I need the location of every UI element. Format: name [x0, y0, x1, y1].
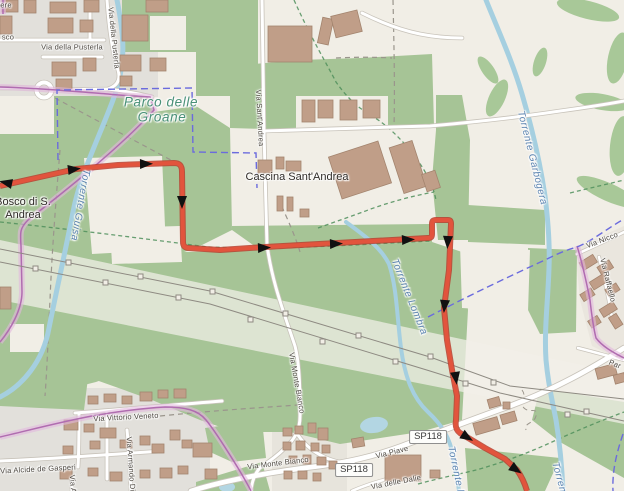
map-canvas[interactable] — [0, 0, 624, 491]
map-viewport[interactable]: Parco delle Groane Bosco di S. Andrea Ca… — [0, 0, 624, 491]
road-ref-badge-sp118-1: SP118 — [409, 430, 447, 444]
road-ref-badge-sp118-2: SP118 — [335, 463, 373, 477]
